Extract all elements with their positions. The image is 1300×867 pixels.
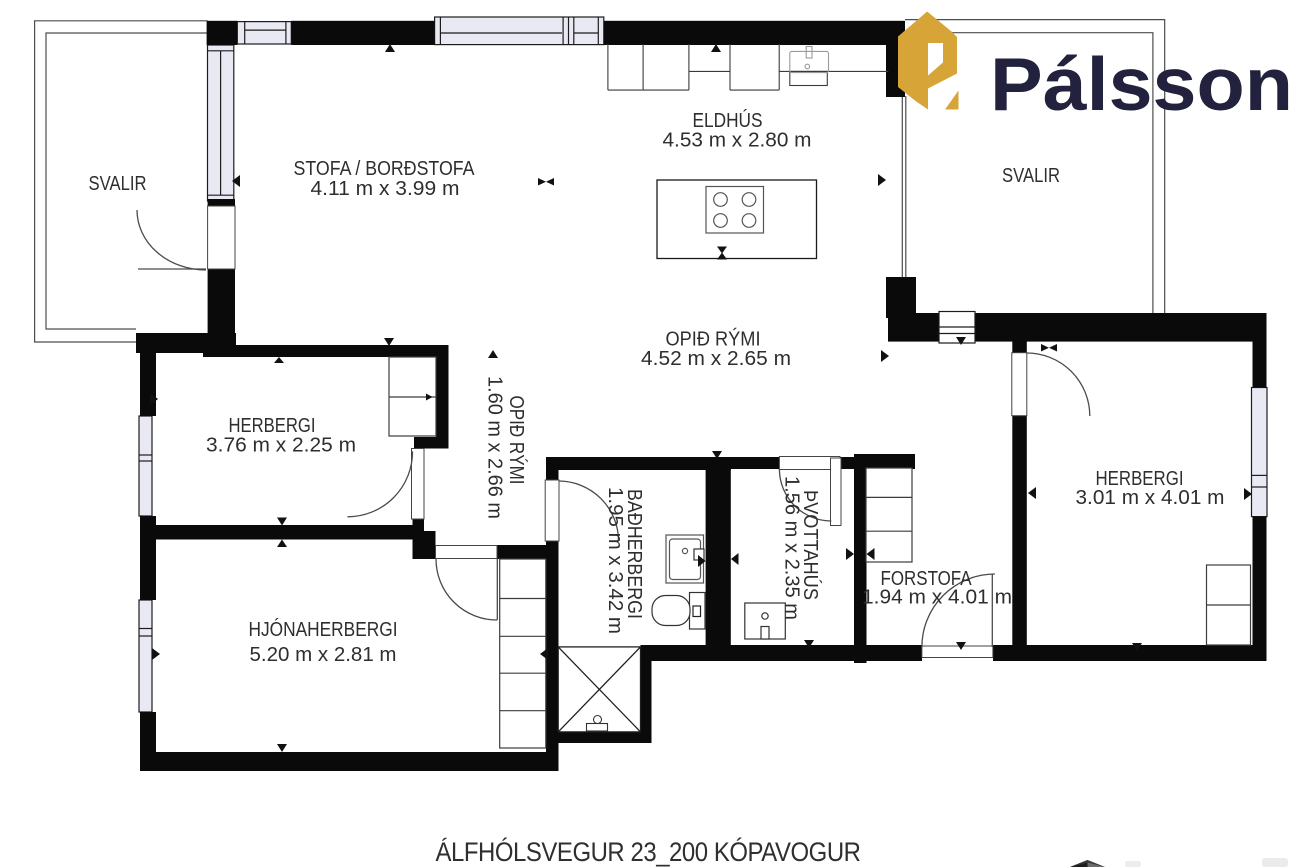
svg-text:SVALIR: SVALIR [1002,165,1060,187]
svg-text:HJÓNAHERBERGI: HJÓNAHERBERGI [249,618,398,641]
svg-text:1.56 m x 2.35 m: 1.56 m x 2.35 m [781,476,803,620]
svg-text:SVALIR: SVALIR [89,173,147,195]
svg-text:5.20 m x 2.81 m: 5.20 m x 2.81 m [250,644,397,666]
svg-text:1.94 m x 4.01 m: 1.94 m x 4.01 m [862,587,1012,609]
svg-text:3.76 m x 2.25 m: 3.76 m x 2.25 m [206,435,356,457]
svg-text:OPIÐ RÝMI: OPIÐ RÝMI [505,396,528,485]
svg-text:1.60 m x 2.66 m: 1.60 m x 2.66 m [484,376,506,519]
svg-text:Pálsson: Pálsson [990,42,1293,126]
svg-text:3.01 m x 4.01 m: 3.01 m x 4.01 m [1076,487,1225,509]
svg-text:4.11 m x 3.99 m: 4.11 m x 3.99 m [311,178,460,200]
svg-text:4.52 m x 2.65 m: 4.52 m x 2.65 m [641,348,791,370]
svg-text:STOFA / BORÐSTOFA: STOFA / BORÐSTOFA [294,158,476,180]
svg-text:4.53 m x 2.80 m: 4.53 m x 2.80 m [663,130,812,152]
svg-text:ÁLFHÓLSVEGUR 23_200 KÓPAVOGUR: ÁLFHÓLSVEGUR 23_200 KÓPAVOGUR [436,836,861,867]
svg-text:1.95 m x 3.42 m: 1.95 m x 3.42 m [604,487,626,634]
